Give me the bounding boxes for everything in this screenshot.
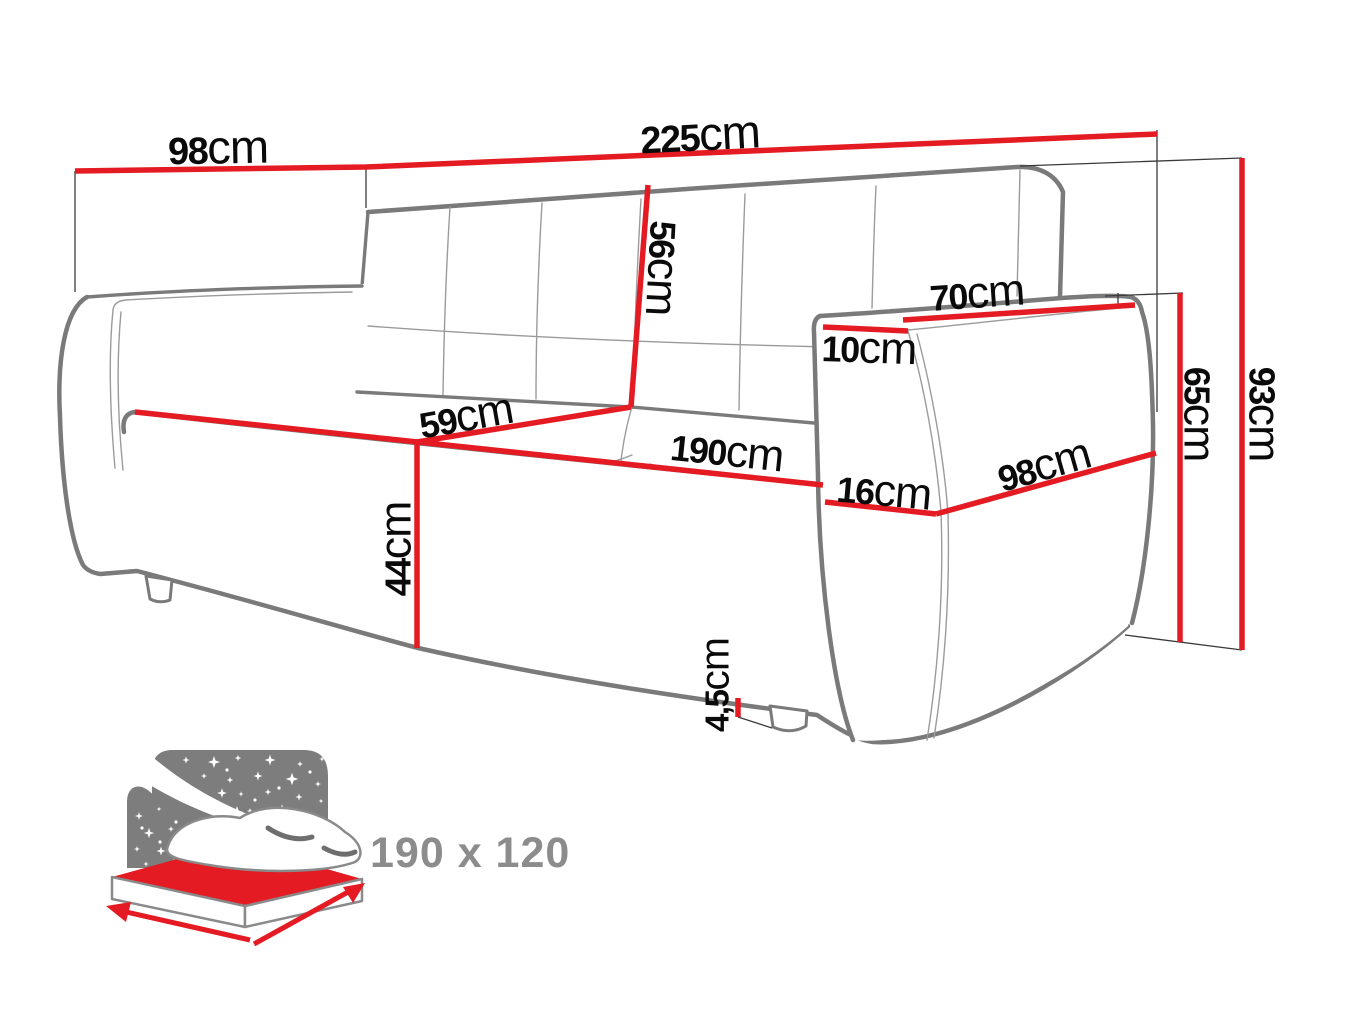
dim-label-overall-depth: 98cm xyxy=(168,123,269,172)
dim-label-armrest-width: 10cm xyxy=(821,325,917,373)
sleeping-size-label: 190 x 120 xyxy=(370,832,570,875)
dimension-diagram: 98cm 225cm 56cm 59cm 190cm 44cm 70cm 10c… xyxy=(0,0,1346,1009)
dim-label-armrest-height: 65cm xyxy=(1176,367,1221,462)
dim-label-armrest-length: 70cm xyxy=(928,268,1025,319)
dim-label-leg-height: 4,5cm xyxy=(695,638,736,732)
dim-label-total-width: 225cm xyxy=(639,107,761,160)
dim-label-total-height: 93cm xyxy=(1241,367,1286,462)
dim-label-backrest-height: 56cm xyxy=(637,220,687,317)
sofa-leg-left xyxy=(146,576,172,602)
dim-label-armrest-front-width: 16cm xyxy=(835,466,933,519)
dim-label-seat-height: 44cm xyxy=(375,502,420,597)
sleeping-function-icon xyxy=(106,744,365,944)
sofa-leg-front xyxy=(770,706,807,731)
arrow-left-icon xyxy=(106,902,131,922)
